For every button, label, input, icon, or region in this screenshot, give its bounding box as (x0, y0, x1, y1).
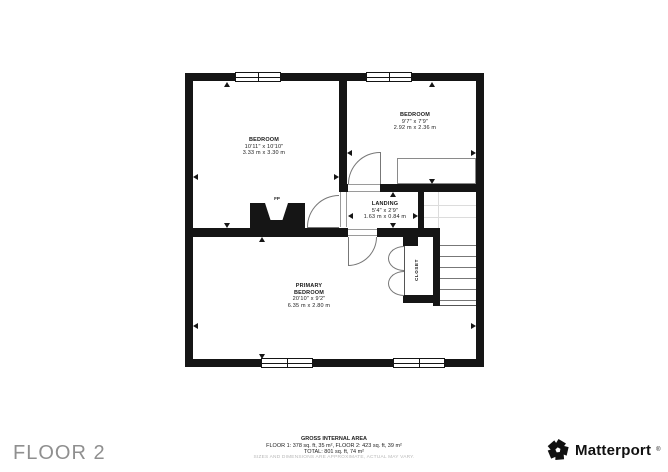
room-label-closet: CLOSET (414, 250, 424, 290)
dim-arrow-left (193, 323, 198, 329)
stair-tread (440, 278, 476, 279)
stair-tread (440, 300, 476, 301)
dim-arrow-right (471, 323, 476, 329)
closet-bifold-door-top (388, 246, 404, 271)
stairs-bottom-edge (440, 305, 476, 306)
room-label-bedroom2: BEDROOM 9'7" x 7'9" 2.92 m x 2.36 m (365, 112, 465, 132)
window-primary-right (393, 358, 445, 368)
room-label-landing: LANDING 5'4" x 2'9" 1.63 m x 0.84 m (335, 201, 435, 221)
registered-mark: ® (656, 447, 660, 453)
area-summary: GROSS INTERNAL AREA FLOOR 1: 378 sq. ft,… (234, 436, 434, 461)
room-label-primary-bedroom: PRIMARY BEDROOM 20'10" x 9'2" 6.35 m x 2… (259, 283, 359, 309)
doorway-bedroom2-jamb (348, 191, 380, 192)
stairs-upper-faint-line (438, 192, 439, 228)
wall-bedroom2-bottom (380, 184, 484, 192)
floor-title: FLOOR 2 (13, 442, 106, 465)
dim-arrow-up (390, 192, 396, 197)
stair-tread (440, 267, 476, 268)
stair-tread (440, 289, 476, 290)
door-swing-primary (348, 237, 377, 266)
door-swing-bedroom2 (348, 152, 380, 184)
room-dims-m: 6.35 m x 2.80 m (259, 303, 359, 310)
door-leaf-bedroom1 (307, 227, 339, 228)
dim-arrow-down (224, 223, 230, 228)
door-leaf-bedroom2 (380, 152, 381, 184)
window-mullion (419, 359, 420, 367)
matterport-logo: Matterport ® (546, 438, 661, 462)
wall-primary-top-left (185, 228, 348, 237)
wall-bedroom2-bottom-stub (339, 184, 348, 192)
window-bedroom1 (235, 72, 281, 82)
window-mullion (287, 359, 288, 367)
doorway-bedroom2-jamb (348, 184, 380, 185)
dim-arrow-left (193, 174, 198, 180)
window-mullion (389, 73, 390, 81)
wall-closet-top (403, 228, 418, 246)
room-dims-m: 1.63 m x 0.84 m (335, 214, 435, 221)
wall-bedroom-divider (339, 81, 347, 192)
fireplace-label: FP (265, 196, 289, 201)
doorway-primary-jamb (348, 235, 377, 236)
window-primary-left (261, 358, 313, 368)
window-bedroom2 (366, 72, 412, 82)
doorway-primary-jamb (348, 229, 377, 230)
brand-name: Matterport (575, 442, 651, 459)
dim-arrow-left (347, 150, 352, 156)
dim-arrow-down (390, 223, 396, 228)
stair-tread (440, 245, 476, 246)
dim-arrow-up (259, 237, 265, 242)
wall-outer-left (185, 73, 193, 367)
closet-bifold-door-bottom (388, 271, 404, 296)
closet-door-frame (404, 246, 405, 295)
stair-tread (440, 256, 476, 257)
room-label-bedroom1: BEDROOM 10'11" x 10'10" 3.33 m x 3.30 m (214, 137, 314, 157)
wall-closet-bottom (403, 295, 440, 303)
matterport-pinwheel-icon (546, 438, 570, 462)
window-mullion (258, 73, 259, 81)
floorplan-page: FP (0, 0, 668, 472)
wall-outer-right (476, 73, 484, 367)
area-disclaimer: SIZES AND DIMENSIONS ARE APPROXIMATE, AC… (234, 455, 434, 462)
dim-arrow-up (429, 82, 435, 87)
dim-arrow-down (259, 354, 265, 359)
room-dims-m: 2.92 m x 2.36 m (365, 125, 465, 132)
dim-arrow-up (224, 82, 230, 87)
bed-outline (397, 158, 476, 184)
dim-arrow-down (429, 179, 435, 184)
wall-outer-top (185, 73, 484, 81)
dim-arrow-right (334, 174, 339, 180)
room-dims-m: 3.33 m x 3.30 m (214, 150, 314, 157)
dim-arrow-right (471, 150, 476, 156)
